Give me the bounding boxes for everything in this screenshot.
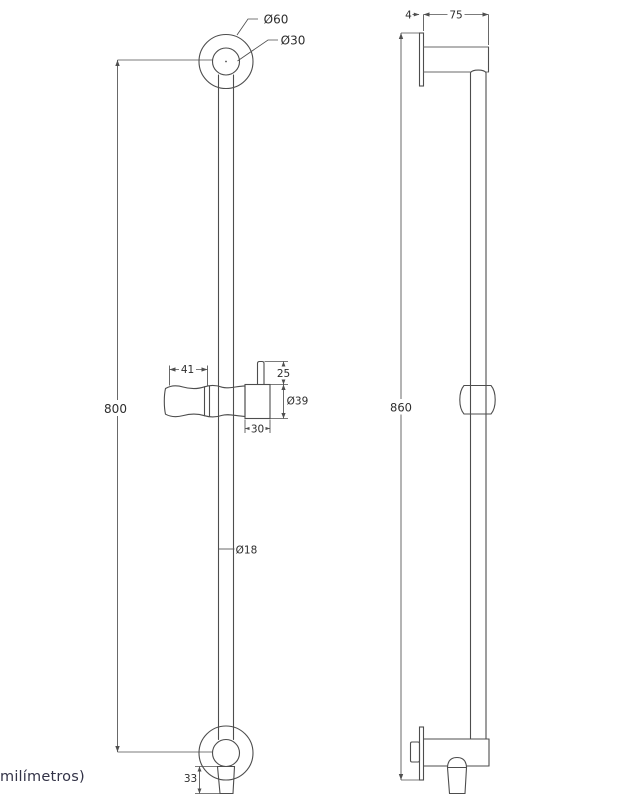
hose-outlet-side [448, 758, 467, 794]
dim-bar-dia: Ø18 [219, 545, 257, 557]
dim-label-41: 41 [181, 364, 194, 376]
dim-label-860: 860 [390, 401, 412, 415]
dim-holder-width: 41 [170, 363, 208, 386]
top-wall-mount-front [199, 35, 253, 89]
dim-outlet-height: 33 [183, 767, 220, 794]
technical-drawing-page: 800 Ø60 Ø30 41 [0, 0, 618, 800]
dim-projection: 75 [424, 9, 489, 46]
dim-label-dia60: Ø60 [264, 13, 289, 27]
side-view: 4 75 860 [389, 9, 496, 794]
dim-knob-and-slider-dia: 25 Ø39 [265, 362, 312, 419]
dim-label-dia18: Ø18 [236, 545, 258, 557]
slider-assembly-side [460, 386, 495, 415]
slider-knob [258, 362, 265, 385]
dim-label-dia39: Ø39 [287, 396, 309, 408]
dim-label-75: 75 [449, 10, 462, 22]
center-mark [225, 61, 227, 63]
dim-top-inner-dia: Ø30 [238, 34, 306, 62]
dim-top-outer-dia: Ø60 [237, 13, 288, 36]
top-wall-mount-side [420, 33, 489, 86]
dim-label-30: 30 [251, 424, 264, 436]
dim-plate-thickness: 4 [405, 10, 419, 22]
dim-overall-height: 860 [389, 33, 420, 780]
dim-bar-length: 800 [103, 60, 213, 752]
wall-plate [420, 33, 424, 86]
units-caption: milímetros) [0, 769, 85, 785]
dim-label-33: 33 [184, 773, 197, 785]
dim-label-800: 800 [104, 402, 127, 416]
bottom-wall-mount-side [411, 727, 490, 780]
front-view: 800 Ø60 Ø30 41 [103, 13, 311, 794]
slider-block [245, 385, 270, 419]
dim-label-4: 4 [405, 10, 412, 22]
wall-plate [420, 727, 424, 780]
dim-label-25: 25 [277, 368, 290, 380]
bottom-wall-mount-front [199, 726, 253, 780]
rail-bar-front [219, 75, 234, 740]
dim-label-dia30: Ø30 [281, 34, 306, 48]
supply-fitting [411, 742, 420, 762]
drawing-canvas: 800 Ø60 Ø30 41 [0, 0, 618, 800]
dim-block-width: 30 [245, 420, 270, 436]
rail-bar-side [471, 70, 487, 739]
